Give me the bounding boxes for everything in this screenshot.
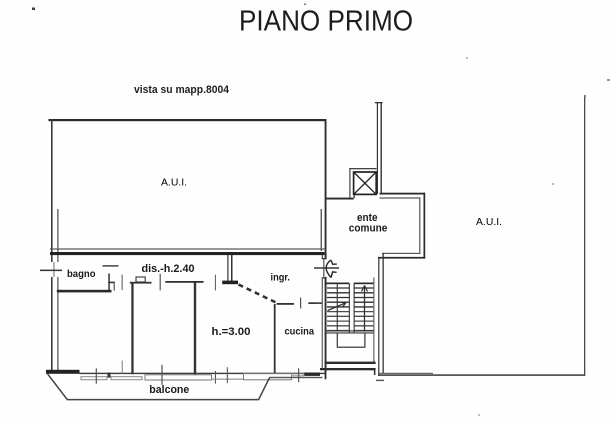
svg-text:cucina: cucina (285, 327, 315, 338)
svg-text:dis.-h.2.40: dis.-h.2.40 (142, 263, 195, 275)
svg-text:bagno: bagno (67, 268, 96, 280)
svg-text:comune: comune (349, 223, 388, 235)
svg-text:vista su mapp.8004: vista su mapp.8004 (134, 84, 229, 96)
svg-text:A.U.I.: A.U.I. (476, 217, 502, 228)
svg-text:A.U.I.: A.U.I. (161, 177, 187, 188)
svg-text:balcone: balcone (149, 384, 189, 396)
svg-text:PIANO PRIMO: PIANO PRIMO (239, 6, 413, 38)
svg-text:h.=3.00: h.=3.00 (212, 326, 251, 338)
svg-text:ingr.: ingr. (271, 272, 291, 284)
